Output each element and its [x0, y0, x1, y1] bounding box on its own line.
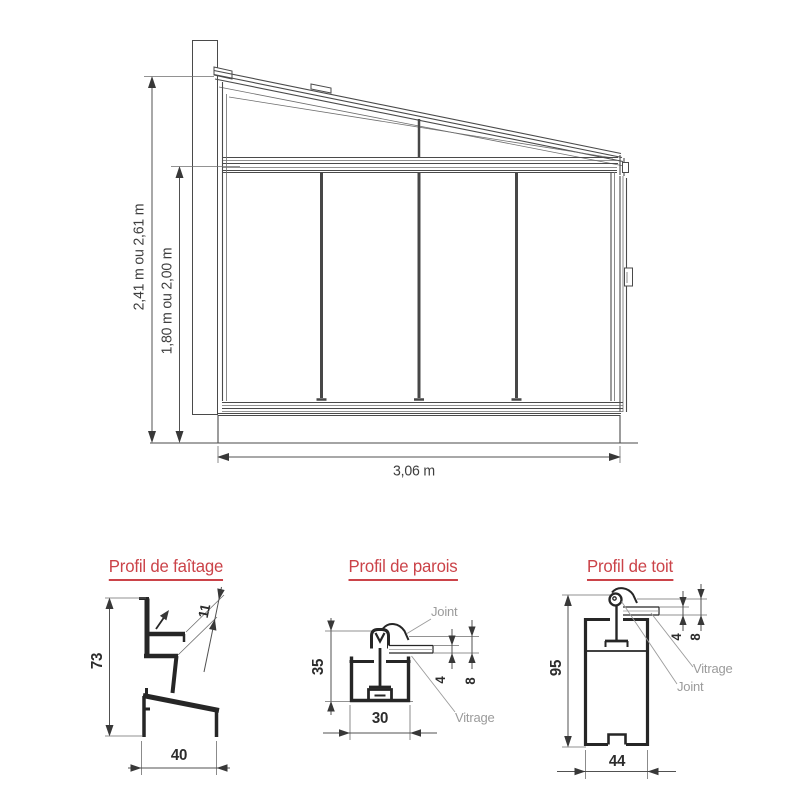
- wall-mullions: [317, 173, 522, 400]
- glazing-clip: [372, 630, 389, 649]
- dim-width: [217, 446, 621, 463]
- roof-assembly: [214, 67, 629, 176]
- roof-vent-rail: [311, 84, 331, 93]
- joint-hook: [612, 588, 637, 603]
- clip-arrow-head-icon: [160, 610, 169, 620]
- dim-parois-height-label: 35: [310, 659, 328, 675]
- label-toit-joint: Joint: [677, 679, 703, 694]
- dim-toit-glass-joint-label: 8: [687, 633, 703, 640]
- dim-parois-width-label: 30: [372, 710, 388, 728]
- dim-width-label: 3,06 m: [393, 463, 435, 480]
- base-plinth: [150, 415, 638, 443]
- section-title-faitage: Profil de faîtage: [109, 556, 223, 581]
- glazed-wall: [223, 82, 633, 412]
- eave-gutter: [623, 163, 629, 173]
- section-title-toit: Profil de toit: [587, 556, 673, 581]
- dim-faitage-width-label: 40: [171, 747, 187, 765]
- label-parois-joint: Joint: [431, 604, 457, 619]
- dim-parois-glass-joint-label: 8: [462, 677, 478, 684]
- elevation-drawing: [144, 41, 638, 464]
- dim-faitage-height-label: 73: [89, 653, 107, 669]
- door-handle: [625, 268, 633, 286]
- dim-total-height-label: 2,41 m ou 2,61 m: [131, 204, 148, 311]
- base-rail: [218, 403, 623, 414]
- transom-beam: [222, 158, 618, 173]
- dim-parois-glass-label: 4: [432, 676, 448, 683]
- section-title-parois: Profil de parois: [349, 556, 458, 581]
- label-parois-vitrage: Vitrage: [455, 710, 495, 725]
- label-toit-vitrage: Vitrage: [693, 661, 733, 676]
- dim-toit-width-label: 44: [609, 753, 625, 771]
- dim-front-height-label: 1,80 m ou 2,00 m: [159, 248, 176, 355]
- dim-toit-glass-label: 4: [668, 633, 684, 640]
- greenhouse-technical-sheet: 2,41 m ou 2,61 m 1,80 m ou 2,00 m 3,06 m…: [0, 0, 800, 800]
- dim-toit-height-label: 95: [548, 660, 566, 676]
- wall-column: [193, 41, 218, 415]
